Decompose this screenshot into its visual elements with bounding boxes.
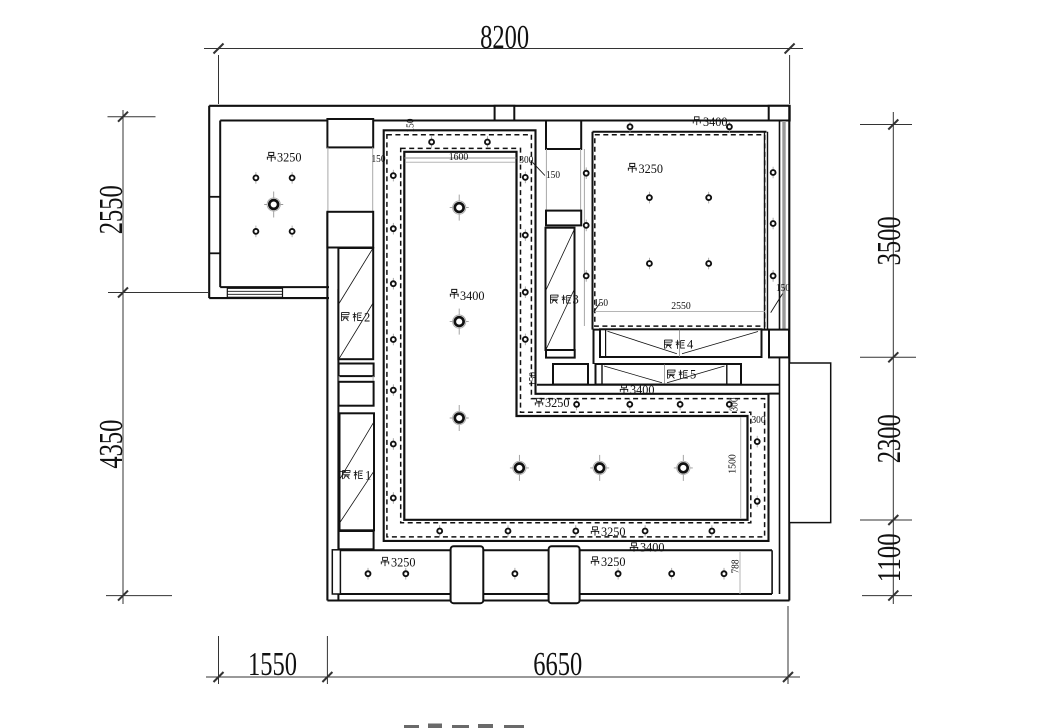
svg-text:150: 150 [527,372,539,386]
svg-text:4: 4 [687,338,694,352]
svg-text:6650: 6650 [533,646,582,683]
svg-text:3400: 3400 [703,115,728,129]
svg-text:3400: 3400 [630,383,655,397]
svg-text:788: 788 [730,559,742,573]
svg-text:3250: 3250 [277,151,302,165]
svg-text:3250: 3250 [545,396,570,410]
svg-text:150: 150 [776,282,790,294]
svg-text:150: 150 [594,297,608,309]
svg-text:2550: 2550 [93,185,130,234]
svg-text:4350: 4350 [93,420,130,469]
svg-text:1100: 1100 [871,533,908,582]
svg-text:1550: 1550 [248,646,297,683]
svg-text:150: 150 [372,153,386,165]
svg-text:150: 150 [405,118,417,132]
svg-text:300: 300 [729,397,741,411]
svg-text:300: 300 [752,414,766,426]
svg-text:1600: 1600 [449,151,469,163]
svg-text:3250: 3250 [639,162,664,176]
svg-text:1500: 1500 [727,454,739,474]
svg-text:3400: 3400 [460,289,485,303]
svg-text:3: 3 [573,293,579,307]
svg-text:2550: 2550 [671,300,691,312]
svg-text:3250: 3250 [601,555,626,569]
svg-text:3400: 3400 [640,541,665,555]
svg-text:150: 150 [546,169,560,181]
svg-text:3250: 3250 [391,556,416,570]
svg-text:8200: 8200 [480,19,529,56]
svg-text:5: 5 [690,368,696,382]
svg-text:2300: 2300 [871,414,908,463]
svg-text:3500: 3500 [871,216,908,265]
svg-text:300: 300 [519,154,533,166]
svg-text:1: 1 [365,469,371,483]
svg-text:2: 2 [364,311,370,325]
svg-text:3250: 3250 [601,525,626,539]
